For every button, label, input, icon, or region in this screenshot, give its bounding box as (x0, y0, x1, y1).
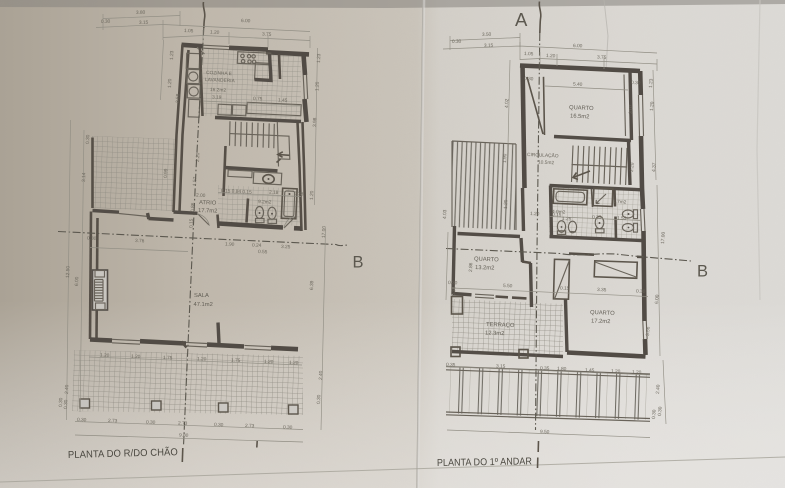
svg-text:3.15: 3.15 (139, 20, 149, 26)
svg-text:QUARTO: QUARTO (590, 310, 615, 317)
svg-text:2.20: 2.20 (629, 162, 636, 172)
svg-text:TERRAÇO: TERRAÇO (486, 322, 515, 329)
svg-text:A: A (515, 9, 528, 30)
svg-text:0.30: 0.30 (87, 236, 97, 242)
svg-text:1.55: 1.55 (617, 216, 627, 222)
svg-text:1.20: 1.20 (197, 356, 207, 362)
svg-text:1.57: 1.57 (192, 176, 198, 186)
svg-text:1.20: 1.20 (131, 354, 141, 360)
svg-text:9.2m2: 9.2m2 (258, 199, 272, 206)
svg-text:1.20: 1.20 (289, 360, 299, 366)
svg-text:1.20: 1.20 (167, 78, 173, 88)
svg-text:0.35: 0.35 (540, 366, 550, 372)
svg-text:0.30: 0.30 (452, 39, 462, 45)
svg-text:PLANTA DO 1º ANDAR: PLANTA DO 1º ANDAR (437, 456, 532, 469)
svg-text:0.30: 0.30 (77, 417, 87, 423)
svg-text:0.30: 0.30 (214, 422, 224, 428)
svg-text:17.00: 17.00 (321, 226, 327, 239)
svg-text:1.20: 1.20 (309, 190, 315, 200)
svg-text:3.15: 3.15 (496, 364, 506, 370)
svg-text:3.19: 3.19 (212, 95, 222, 101)
svg-text:12.50: 12.50 (65, 266, 71, 279)
svg-text:4.03: 4.03 (442, 209, 448, 219)
svg-text:B: B (697, 263, 708, 281)
svg-text:16.2m2: 16.2m2 (210, 87, 227, 94)
svg-text:1.25: 1.25 (562, 216, 572, 222)
svg-text:1.20: 1.20 (100, 353, 110, 359)
svg-text:0.24: 0.24 (252, 243, 262, 249)
svg-text:17.2m2: 17.2m2 (591, 319, 611, 326)
svg-text:2.73: 2.73 (178, 421, 188, 427)
svg-text:1.23: 1.23 (169, 50, 175, 60)
svg-text:6.00: 6.00 (241, 18, 251, 24)
svg-text:3.75: 3.75 (597, 55, 607, 61)
svg-text:ATRIO: ATRIO (199, 200, 217, 207)
svg-text:17.7m2: 17.7m2 (198, 208, 218, 215)
svg-text:1.20: 1.20 (315, 81, 321, 91)
svg-text:1.7m2: 1.7m2 (613, 199, 627, 206)
svg-text:1.80: 1.80 (557, 366, 567, 372)
svg-text:1.23: 1.23 (648, 78, 655, 88)
svg-text:0.30: 0.30 (283, 425, 293, 431)
svg-text:3.15: 3.15 (484, 43, 494, 49)
svg-text:1.20: 1.20 (530, 211, 540, 217)
svg-text:9.80: 9.80 (179, 433, 189, 439)
svg-text:COZINHA E: COZINHA E (206, 70, 232, 77)
svg-text:10.5m2: 10.5m2 (538, 160, 555, 167)
svg-text:4.02: 4.02 (504, 98, 510, 108)
svg-text:0.38: 0.38 (451, 286, 457, 296)
svg-text:1.20: 1.20 (632, 370, 642, 376)
svg-text:1.90: 1.90 (502, 153, 508, 163)
svg-text:5.50: 5.50 (503, 283, 513, 289)
svg-text:3.58: 3.58 (175, 93, 181, 103)
svg-text:1.20: 1.20 (546, 53, 556, 59)
svg-text:0.30: 0.30 (58, 397, 64, 407)
svg-text:0.99: 0.99 (163, 168, 169, 178)
svg-text:3.25: 3.25 (281, 244, 291, 250)
svg-text:0.30: 0.30 (146, 420, 156, 426)
svg-text:3.07: 3.07 (628, 104, 635, 114)
svg-text:1.20: 1.20 (503, 199, 509, 209)
svg-text:6.39: 6.39 (309, 280, 315, 290)
svg-text:9.50: 9.50 (540, 429, 550, 435)
svg-text:0.15: 0.15 (189, 218, 195, 228)
svg-text:0.30: 0.30 (316, 394, 322, 404)
svg-text:4.37: 4.37 (651, 162, 658, 172)
svg-text:3.98: 3.98 (312, 117, 318, 127)
svg-text:1.75: 1.75 (231, 358, 241, 364)
svg-text:3.80: 3.80 (136, 10, 146, 16)
svg-text:6.00: 6.00 (74, 276, 80, 286)
svg-text:2.73: 2.73 (108, 418, 118, 424)
svg-text:1.45: 1.45 (585, 368, 595, 374)
svg-text:6.00: 6.00 (654, 294, 661, 304)
svg-text:3.14: 3.14 (81, 172, 87, 182)
svg-text:2.86: 2.86 (468, 262, 474, 272)
svg-text:2.73: 2.73 (245, 423, 255, 429)
svg-text:QUARTO: QUARTO (474, 257, 499, 264)
svg-text:0.30: 0.30 (631, 80, 641, 86)
svg-text:3.76: 3.76 (135, 238, 145, 244)
svg-text:B: B (353, 254, 364, 272)
svg-text:0.30: 0.30 (85, 134, 91, 144)
svg-text:1.23: 1.23 (316, 53, 322, 63)
svg-text:0.15: 0.15 (560, 286, 570, 292)
svg-text:0.30: 0.30 (448, 280, 458, 286)
svg-text:2.40: 2.40 (64, 384, 70, 394)
svg-text:1.20: 1.20 (649, 101, 656, 111)
svg-text:5.40: 5.40 (573, 82, 583, 88)
svg-text:2.20: 2.20 (195, 152, 201, 162)
svg-text:0.38: 0.38 (294, 191, 304, 197)
svg-text:47.1m2: 47.1m2 (194, 302, 213, 308)
svg-text:6.00: 6.00 (573, 43, 583, 49)
svg-text:3.75: 3.75 (262, 32, 272, 38)
svg-text:0.35: 0.35 (446, 362, 456, 368)
svg-text:3.35: 3.35 (597, 287, 607, 293)
svg-text:0.30: 0.30 (101, 19, 111, 25)
svg-text:2.40: 2.40 (318, 370, 324, 380)
svg-text:0.35: 0.35 (592, 215, 602, 221)
svg-text:0.86: 0.86 (190, 202, 196, 212)
svg-text:3.50: 3.50 (482, 32, 492, 38)
svg-text:2.00: 2.00 (196, 193, 206, 199)
svg-text:0.75: 0.75 (253, 96, 263, 102)
svg-text:0.30: 0.30 (657, 406, 664, 416)
svg-text:1.20: 1.20 (264, 359, 274, 365)
svg-text:16.5m2: 16.5m2 (570, 114, 590, 121)
svg-text:1.90: 1.90 (225, 242, 235, 248)
svg-text:0.30: 0.30 (524, 76, 534, 82)
svg-text:3.56: 3.56 (645, 326, 652, 336)
svg-text:1.05: 1.05 (524, 51, 534, 57)
svg-text:QUARTO: QUARTO (569, 105, 594, 112)
svg-text:0.55: 0.55 (258, 249, 268, 255)
svg-text:1.20: 1.20 (611, 369, 621, 375)
svg-text:1.45: 1.45 (278, 98, 288, 104)
svg-text:1.75: 1.75 (163, 355, 173, 361)
svg-text:12.3m2: 12.3m2 (485, 331, 505, 338)
svg-text:2.40: 2.40 (655, 384, 662, 394)
svg-text:0.15: 0.15 (552, 212, 562, 218)
svg-text:2.18: 2.18 (269, 190, 279, 196)
svg-text:1.05: 1.05 (184, 28, 194, 34)
svg-text:17.00: 17.00 (660, 231, 667, 244)
svg-text:0.30: 0.30 (636, 289, 646, 295)
svg-text:13.2m2: 13.2m2 (475, 265, 495, 272)
svg-text:1.20: 1.20 (210, 30, 220, 36)
svg-text:SALA: SALA (194, 293, 209, 299)
svg-text:0.30: 0.30 (651, 409, 658, 419)
